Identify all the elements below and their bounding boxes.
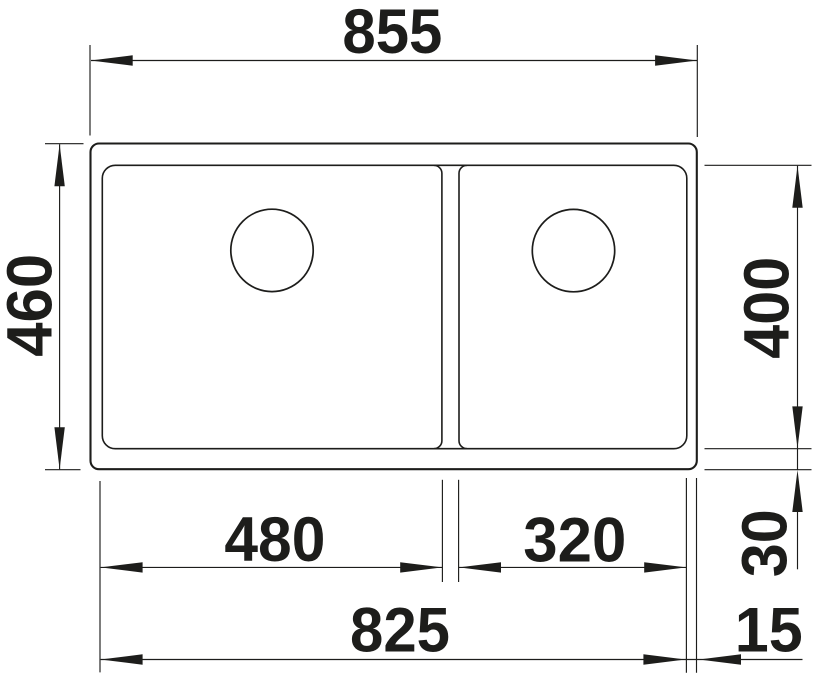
svg-text:15: 15 [735,595,803,665]
svg-text:480: 480 [224,505,325,575]
svg-text:855: 855 [342,0,442,67]
svg-text:460: 460 [0,254,66,357]
svg-text:30: 30 [729,509,801,577]
svg-text:320: 320 [523,505,626,575]
svg-text:400: 400 [730,257,802,359]
svg-text:825: 825 [350,596,450,666]
